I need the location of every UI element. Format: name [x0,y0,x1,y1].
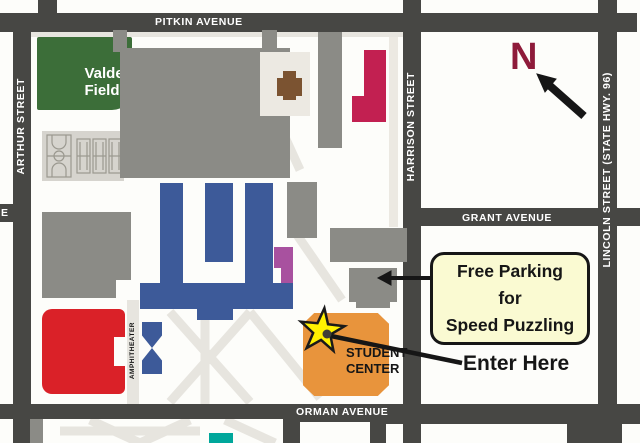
callout-line-2: for [498,285,521,312]
callout-line-1: Free Parking [457,258,563,285]
annotation-overlay [0,0,640,443]
north-arrow [537,74,584,116]
free-parking-callout: Free Parking for Speed Puzzling [430,252,590,345]
student-center-label: STUDENTCENTER [303,345,389,361]
enter-here-label: Enter Here [463,352,569,376]
callout-line-3: Speed Puzzling [446,312,574,339]
entrance-dot [323,330,332,339]
campus-map: PITKIN AVENUE ARTHUR STREET HARRISON STR… [0,0,640,443]
parking-arrow [378,271,432,285]
north-letter: N [510,36,537,79]
